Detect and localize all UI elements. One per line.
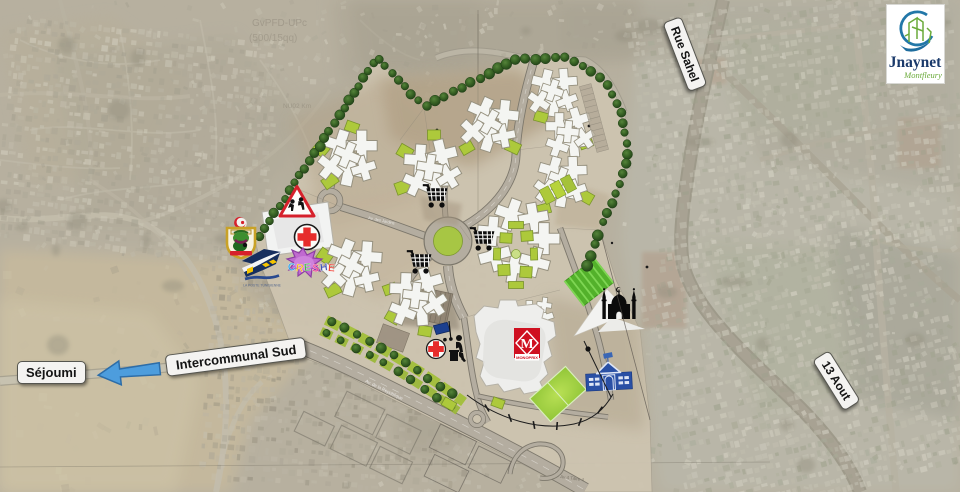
svg-text:E: E — [303, 261, 311, 274]
svg-text:LA POSTE TUNISIENNE: LA POSTE TUNISIENNE — [243, 284, 282, 288]
svg-text:E: E — [327, 262, 335, 275]
svg-text:M: M — [520, 337, 533, 352]
svg-text:S: S — [311, 262, 320, 275]
svg-text:MONOPRIX: MONOPRIX — [516, 355, 538, 360]
svg-text:Montfleury: Montfleury — [903, 70, 942, 80]
svg-text:Jnaynet: Jnaynet — [889, 54, 942, 71]
